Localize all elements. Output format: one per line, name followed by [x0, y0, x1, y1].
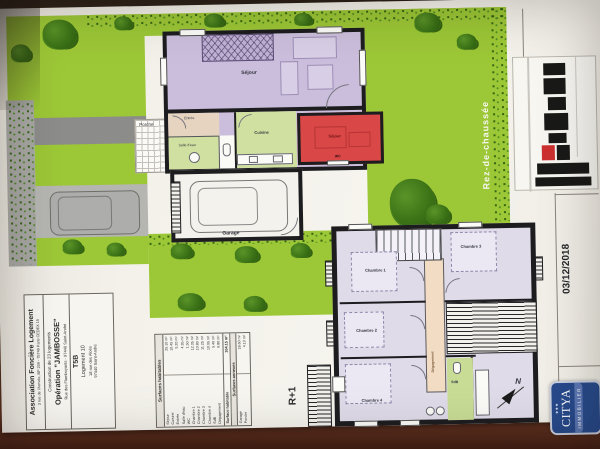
first-floor-title: R+1 [287, 386, 298, 405]
window [316, 26, 342, 33]
surface-total-label: Surface habitable [224, 374, 231, 426]
keyplan-building [548, 97, 566, 110]
car-in-garage-cabin [197, 187, 258, 226]
salle-eau-label: Salle d'eau [179, 143, 196, 147]
unit-address2: 97440 Saint-André [92, 296, 99, 426]
bush [11, 44, 31, 62]
bush [414, 12, 440, 32]
keyplan-building [535, 176, 591, 186]
bed [450, 231, 497, 272]
keyplan-road [527, 58, 532, 192]
window [354, 421, 378, 427]
shutter-hatch [535, 256, 543, 280]
toilet [453, 362, 461, 374]
terrace-hatch [307, 364, 332, 426]
surface-total-value: 104.15 m² [223, 333, 230, 373]
photo-of-floor-plan: Porche Séjour WC [0, 0, 600, 449]
chambre1-label: Chambre 1 [365, 267, 386, 272]
bush [62, 239, 82, 254]
sink [436, 406, 445, 415]
keyplan-road [575, 57, 578, 157]
keyplan-building [543, 63, 565, 75]
bush [171, 243, 193, 259]
chambre3-label: Chambre 3 [461, 244, 482, 249]
bush [294, 13, 312, 26]
citya-logo: ◆◆◆ CITYA IMMOBILIER [549, 380, 600, 435]
door-gap [332, 376, 345, 392]
logo-brand: CITYA [558, 383, 573, 433]
window [179, 29, 205, 36]
key-plan [512, 55, 599, 191]
chambre4-label: Chambre 4 [362, 397, 383, 402]
surface-room-names: Séjour Cuisine Entrée Salle d'eau WC Cha… [164, 374, 224, 427]
entree-label: Entrée [184, 116, 194, 120]
title-block: Association Foncière Logement 3 rue de l… [23, 293, 116, 431]
sejour-label: Séjour [241, 70, 257, 76]
roof-hatch [446, 301, 538, 355]
window [348, 224, 372, 230]
treeline-street [8, 102, 37, 264]
driveway [34, 116, 146, 145]
shutter-hatch [326, 320, 334, 346]
sofa [293, 36, 337, 59]
porch-label: Porche [139, 122, 153, 127]
sheet-frame-line [558, 365, 600, 367]
window [359, 50, 367, 86]
kitchen-hob [273, 155, 283, 162]
treeline-right [490, 7, 510, 221]
red-room-furniture [348, 132, 370, 147]
sheet-frame-line [555, 193, 599, 195]
sdb-label: SdB [451, 380, 458, 384]
surface-room-values: 25.10 m² 10.45 m² 5.20 m² 4.35 m² 1.50 m… [163, 334, 223, 375]
car-outdoor-cabin [58, 196, 113, 231]
keyplan-highlight-unit [542, 145, 555, 160]
plan-sheet: Porche Séjour WC [0, 0, 600, 433]
dining-table [307, 64, 333, 89]
bush [204, 13, 224, 27]
keyplan-building [557, 145, 570, 160]
red-room-wc-label: WC [335, 154, 341, 158]
compass-n-label: N [515, 377, 521, 386]
chambre2-label: Chambre 2 [356, 328, 377, 333]
corridor-label: Dégagement [431, 351, 435, 372]
surface-table: Surfaces habitables Séjour Cuisine Entré… [154, 332, 252, 428]
toilet [223, 143, 231, 156]
keyplan-building [544, 113, 568, 130]
kitchen-sink [249, 156, 258, 163]
window [400, 420, 420, 426]
corridor [424, 258, 447, 392]
bush [106, 242, 124, 256]
ground-floor-title: Rez-de-chaussée [480, 101, 492, 190]
bush [235, 246, 259, 263]
bush [177, 293, 203, 311]
chairs [280, 61, 299, 95]
bush [457, 34, 477, 50]
window [160, 58, 168, 86]
bush [244, 296, 266, 312]
garden-strip-left [35, 141, 148, 188]
keyplan-building [537, 162, 589, 174]
red-room-label: Séjour [328, 133, 341, 138]
logo-sub: IMMOBILIER [575, 383, 584, 433]
shutter-hatch [325, 260, 333, 286]
date-stamp: 03/12/2018 [561, 244, 573, 294]
bush [114, 16, 132, 30]
annex-values: 18.60 m² 4.10 m² [236, 333, 249, 373]
annex-names: Garage Porche [237, 373, 250, 425]
cuisine-label: Cuisine [254, 130, 269, 135]
bathtub [475, 369, 490, 415]
garage-door [170, 181, 181, 233]
window [327, 160, 349, 165]
stair-ground [202, 34, 275, 62]
garden-strip-left-low [36, 234, 149, 266]
keyplan-building [543, 78, 565, 94]
keyplan-building [548, 133, 566, 143]
kitchen-counter [237, 153, 293, 165]
sheet-frame-line [522, 9, 524, 57]
window [458, 222, 482, 228]
garage-label: Garage [222, 230, 239, 236]
compass: N [495, 383, 526, 414]
bush [291, 243, 311, 258]
bush [42, 19, 77, 50]
bush [426, 204, 450, 224]
